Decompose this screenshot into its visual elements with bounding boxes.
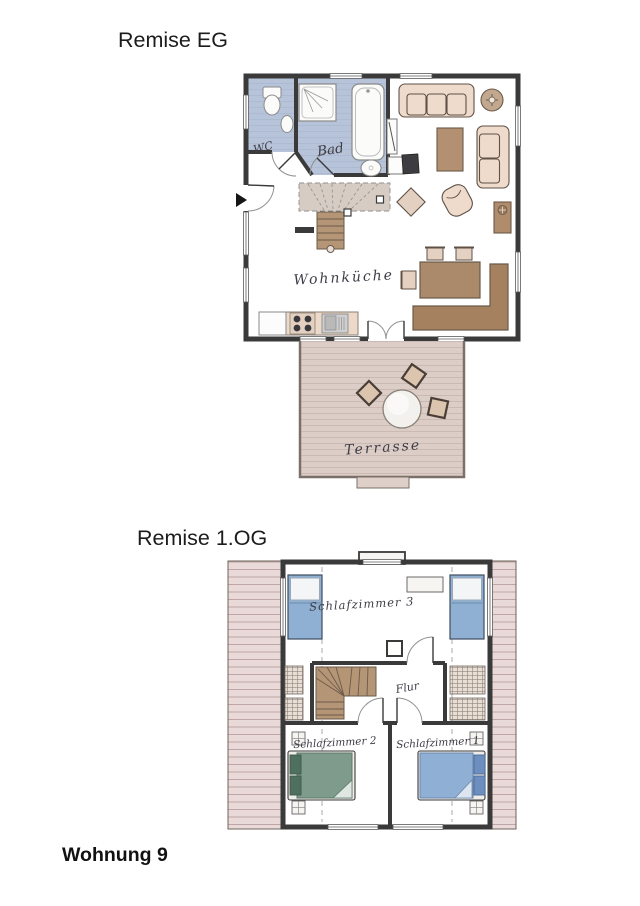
terrace: Terrasse: [300, 341, 464, 488]
kitchen-sink: [322, 314, 348, 333]
window: [300, 337, 326, 342]
room-label-flur: Flur: [394, 679, 421, 696]
stairs-eg: [299, 183, 390, 253]
title-remise-og: Remise 1.OG: [137, 526, 267, 550]
title-remise-eg: Remise EG: [118, 28, 228, 52]
og-plan: Schlafzimmer 3 Flur Schlafzimmer 2 Schla…: [228, 552, 516, 830]
window: [334, 337, 360, 342]
bathroom-sink: [361, 160, 381, 176]
title-wohnung: Wohnung 9: [62, 844, 168, 866]
og-window: [488, 578, 493, 636]
window: [244, 268, 249, 302]
roof-left: [228, 561, 283, 829]
bathtub: [352, 84, 384, 160]
floorplan-drawing: Remise EG Remise 1.OG Wohnung 9: [0, 0, 640, 906]
shower: [299, 84, 336, 121]
roof-right: [490, 561, 516, 829]
window: [244, 212, 249, 255]
sofa-two-seat: [477, 126, 509, 188]
og-window: [281, 578, 286, 636]
cabinet: [494, 202, 511, 233]
side-table-plant: [481, 89, 503, 111]
french-door: [368, 321, 404, 342]
window: [438, 337, 464, 342]
dining-stool: [454, 248, 474, 261]
coffee-table: [437, 128, 463, 171]
armchair: [439, 182, 476, 220]
terrace-step: [357, 477, 409, 488]
toilet: [263, 87, 281, 115]
window: [516, 106, 521, 146]
entrance-door: [243, 185, 274, 211]
wc-door: [272, 152, 296, 176]
kitchen-counter: [259, 312, 358, 335]
floor-lamp: [387, 119, 397, 154]
wall-stub-stairs: [295, 227, 314, 233]
tv: [402, 154, 419, 174]
bed-single: [450, 575, 484, 639]
knee-storage: [285, 698, 303, 720]
terrace-chair: [428, 398, 448, 418]
room-label-wohnkueche: Wohnküche: [293, 267, 394, 288]
window: [516, 252, 521, 292]
bed-double-blue: [418, 751, 485, 800]
window: [400, 74, 432, 79]
knee-storage: [450, 698, 485, 720]
eg-plan: WC Bad Wohnküche: [236, 74, 521, 342]
door-schlafzimmer2: [358, 698, 383, 723]
chimney: [387, 641, 402, 656]
fridge: [259, 312, 286, 335]
floorplan-page: Remise EG Remise 1.OG Wohnung 9: [0, 0, 640, 906]
knee-storage: [450, 666, 485, 694]
room-label-schlafzimmer2: Schlafzimmer 2: [293, 735, 377, 751]
stairs-og: [316, 667, 376, 719]
og-window: [393, 825, 443, 830]
dining-table: [420, 262, 480, 298]
dining-chair: [402, 271, 417, 289]
door-schlafzimmer1: [397, 698, 422, 723]
sofa-three-seat: [399, 84, 474, 117]
dining-stool: [425, 248, 445, 261]
og-window: [328, 825, 378, 830]
nightstand: [470, 801, 483, 814]
dormer-window: [363, 560, 401, 565]
door-schlafzimmer3: [407, 637, 433, 663]
window: [244, 95, 249, 129]
bed-double-green: [288, 751, 355, 800]
tv-stand: [388, 157, 403, 174]
terrace-table: [383, 390, 421, 428]
window: [330, 74, 362, 79]
stove: [290, 313, 315, 334]
newel-post: [327, 246, 334, 253]
room-label-schlafzimmer3: Schlafzimmer 3: [309, 594, 415, 613]
wc-sink: [281, 116, 293, 133]
nightstand: [292, 801, 305, 814]
wardrobe: [407, 577, 443, 592]
room-label-schlafzimmer1: Schlafzimmer 1: [396, 735, 480, 751]
floor-cushion: [397, 188, 425, 216]
knee-storage: [285, 666, 303, 694]
